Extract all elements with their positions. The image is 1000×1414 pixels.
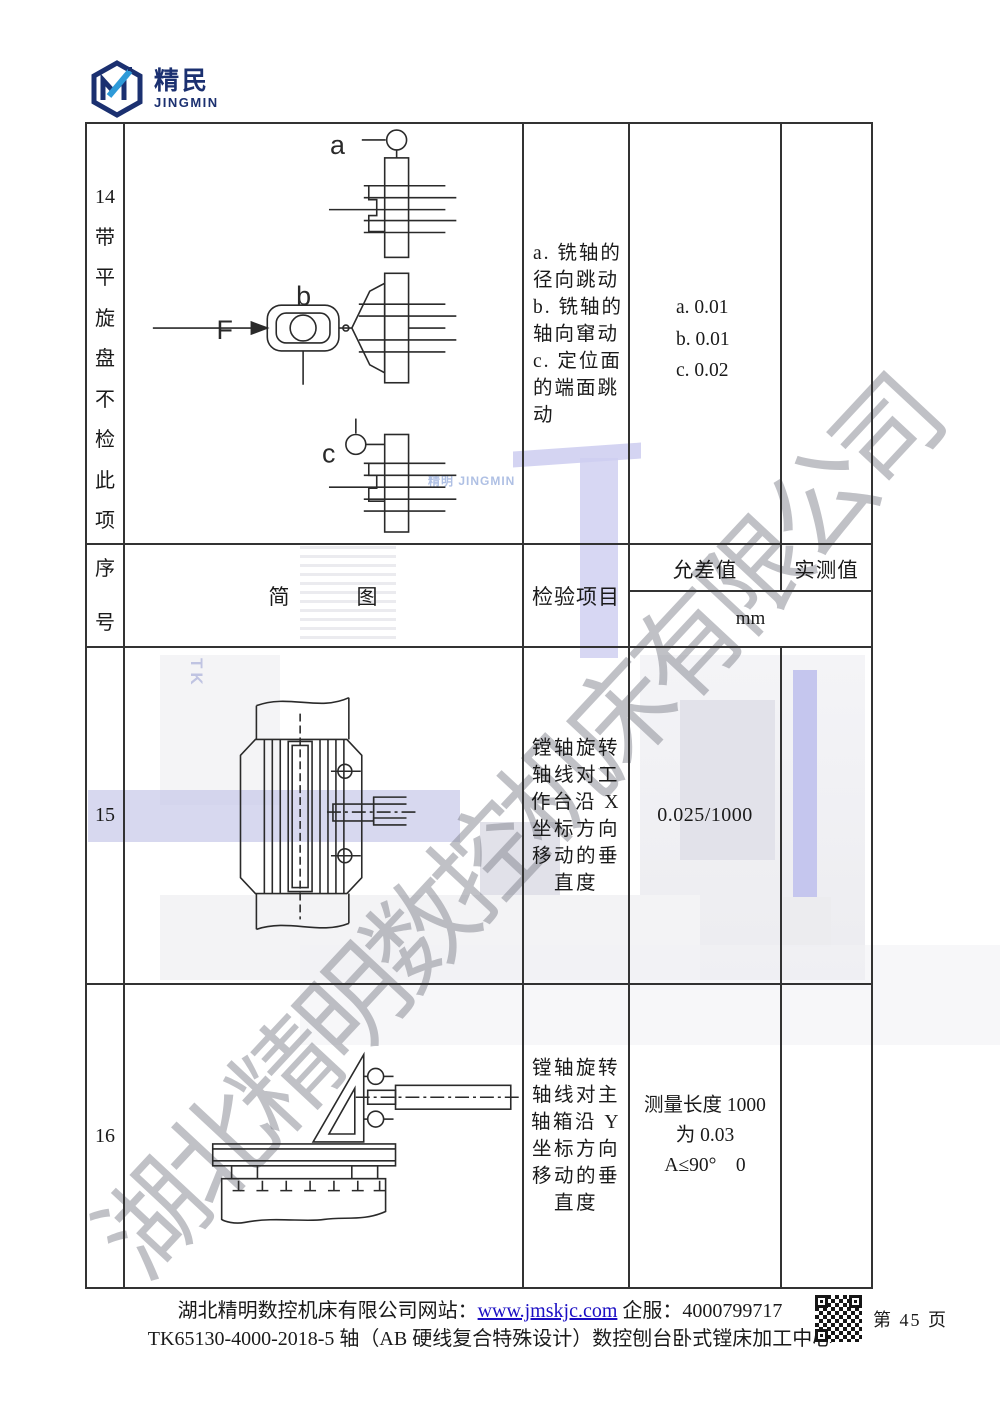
- row15-item: 镗轴旋转 轴线对工 作台沿 X 坐标方向 移动的垂 直度: [524, 648, 630, 985]
- company-logo: 精民 JINGMIN: [88, 60, 219, 118]
- row14-measured: [782, 124, 873, 545]
- spindle-runout-diagram: a b F: [125, 124, 522, 543]
- wedge-block: [352, 283, 385, 373]
- qr-code: [815, 1295, 862, 1342]
- row14-diagram-cell: a b F: [125, 124, 524, 545]
- qr-finder-icon: [815, 1295, 828, 1308]
- row15-diagram-cell: [125, 648, 524, 985]
- footer-service-phone: 企服：4000799717: [617, 1300, 782, 1322]
- row14-seq-note: 14 带 平 旋 盘 不 检 此 项: [87, 124, 125, 545]
- diagram-label-a: a: [330, 130, 345, 160]
- row16-diagram-cell: [125, 985, 524, 1289]
- header-diagram: 简 图: [125, 545, 524, 648]
- square-on-table-diagram: [125, 985, 522, 1287]
- dial-indicator-icon: [346, 434, 366, 454]
- row14-item: a. 铣轴的 径向跳动 b. 铣轴的 轴向窜动 c. 定位面 的端面跳 动: [524, 124, 630, 545]
- logo-brand-en: JINGMIN: [154, 96, 219, 109]
- logo-brand-cn: 精民: [154, 69, 219, 94]
- header-item: 检验项目: [524, 545, 630, 648]
- row16-item: 镗轴旋转 轴线对主 轴箱沿 Y 坐标方向 移动的垂 直度: [524, 985, 630, 1289]
- qr-finder-icon: [849, 1295, 862, 1308]
- diagram-label-c: c: [322, 438, 335, 468]
- header-unit: mm: [630, 592, 873, 648]
- diagram-label-force: F: [217, 315, 233, 345]
- qr-finder-icon: [815, 1329, 828, 1342]
- dial-indicator-icon: [368, 1111, 384, 1127]
- row14-tolerance: a. 0.01 b. 0.01 c. 0.02: [630, 124, 782, 545]
- document-page: { "logo": { "brand_cn": "精民", "brand_en"…: [0, 0, 1000, 1414]
- row15-seq: 15: [87, 648, 125, 985]
- page-number: 第 45 页: [873, 1306, 948, 1332]
- header-tolerance: 允差值: [630, 545, 782, 592]
- row16-measured: [782, 985, 873, 1289]
- footer-site-label: 湖北精明数控机床有限公司网站：: [178, 1300, 478, 1322]
- header-seq: 序 号: [87, 545, 125, 648]
- row16-tolerance: 测量长度 1000 为 0.03 A≤90° 0: [630, 985, 782, 1289]
- row16-seq: 16: [87, 985, 125, 1289]
- diagram-label-b: b: [296, 281, 311, 311]
- inspection-table: 14 带 平 旋 盘 不 检 此 项 a b: [85, 122, 873, 1289]
- rotary-table-squareness-diagram: [125, 648, 522, 983]
- dial-indicator-icon: [368, 1068, 384, 1084]
- row15-tolerance: 0.025/1000: [630, 648, 782, 985]
- dial-indicator-icon: [387, 130, 407, 150]
- website-link[interactable]: www.jmskjc.com: [478, 1300, 618, 1322]
- row15-measured: [782, 648, 873, 985]
- header-measured: 实测值: [782, 545, 873, 592]
- set-square: [313, 1055, 364, 1142]
- logo-hexagon-icon: [88, 60, 146, 118]
- dial-indicator-side-icon: [267, 305, 339, 351]
